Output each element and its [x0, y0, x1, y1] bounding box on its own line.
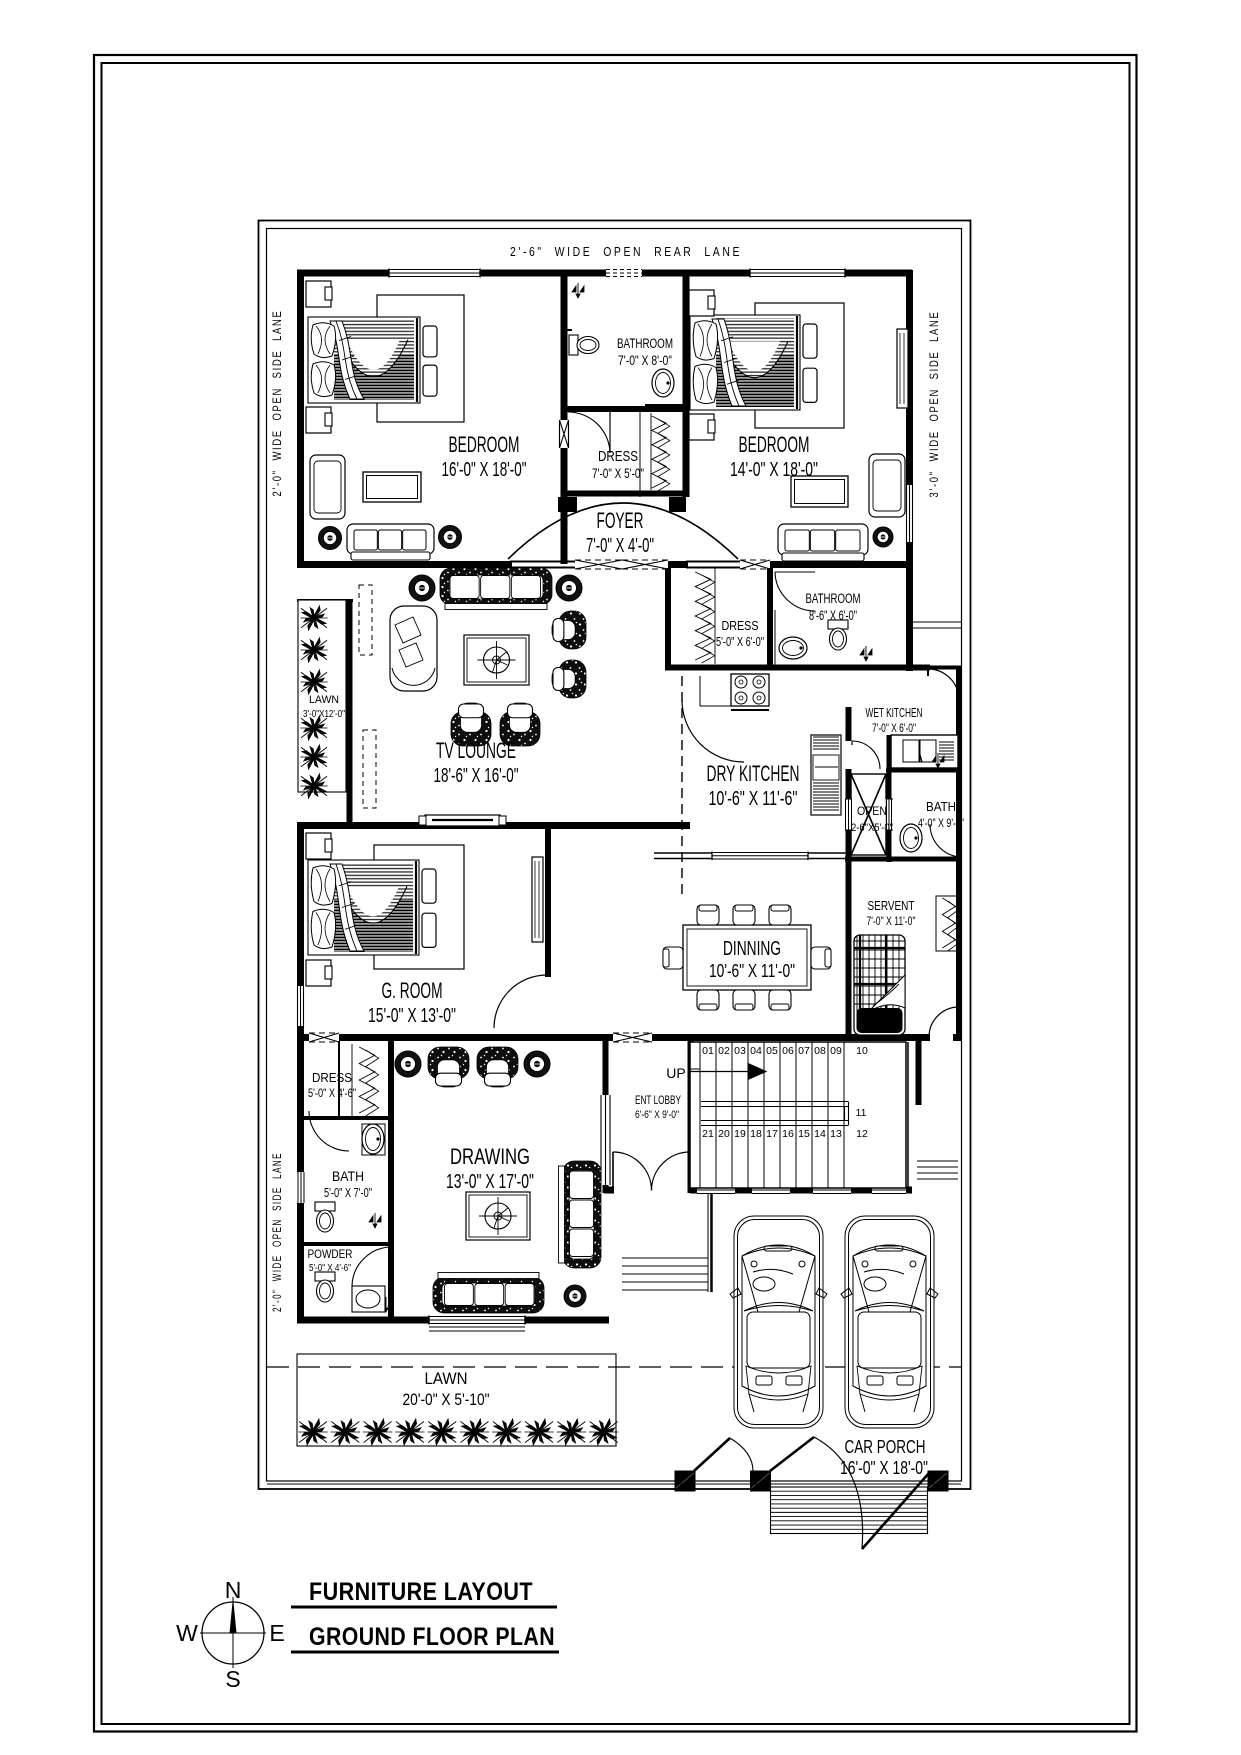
- svg-text:04: 04: [750, 1045, 762, 1057]
- svg-text:18: 18: [750, 1128, 762, 1140]
- svg-text:S: S: [225, 1666, 240, 1692]
- svg-text:09: 09: [830, 1045, 842, 1057]
- svg-text:2-6"X5'-0": 2-6"X5'-0": [851, 822, 893, 834]
- svg-text:15'-0" X 13'-0": 15'-0" X 13'-0": [368, 1005, 456, 1027]
- svg-text:GROUND FLOOR PLAN: GROUND FLOOR PLAN: [309, 1623, 555, 1651]
- svg-text:16: 16: [782, 1128, 794, 1140]
- svg-text:21: 21: [702, 1128, 714, 1140]
- svg-text:BATHROOM: BATHROOM: [806, 591, 861, 606]
- svg-text:13'-0" X 17'-0": 13'-0" X 17'-0": [446, 1171, 534, 1193]
- svg-text:10'-6" X 11'-6": 10'-6" X 11'-6": [709, 788, 798, 810]
- svg-text:W: W: [176, 1620, 198, 1646]
- svg-text:DRESS: DRESS: [312, 1070, 352, 1085]
- svg-text:03: 03: [734, 1045, 746, 1057]
- svg-text:N: N: [225, 1577, 242, 1603]
- svg-text:UP: UP: [666, 1065, 685, 1081]
- svg-text:15: 15: [798, 1128, 810, 1140]
- svg-text:BATH: BATH: [332, 1168, 364, 1184]
- svg-text:02: 02: [718, 1045, 730, 1057]
- svg-text:POWDER: POWDER: [308, 1249, 353, 1261]
- svg-text:17: 17: [766, 1128, 778, 1140]
- svg-text:DRESS: DRESS: [598, 448, 638, 465]
- svg-text:12: 12: [856, 1128, 868, 1140]
- svg-text:7'-0" X 11'-0": 7'-0" X 11'-0": [867, 916, 916, 928]
- svg-text:SERVENT: SERVENT: [868, 899, 915, 913]
- svg-text:ENT LOBBY: ENT LOBBY: [635, 1093, 681, 1107]
- svg-text:11: 11: [856, 1107, 867, 1119]
- svg-text:7'-0" X 8'-0": 7'-0" X 8'-0": [618, 353, 672, 368]
- svg-text:3'-0"X12'-0": 3'-0"X12'-0": [303, 708, 345, 720]
- svg-text:5'-0" X 4'-6": 5'-0" X 4'-6": [308, 1086, 356, 1100]
- svg-text:10: 10: [856, 1045, 868, 1057]
- svg-text:14: 14: [814, 1128, 826, 1140]
- svg-text:3'-0" WIDE OPEN SIDE LANE: 3'-0" WIDE OPEN SIDE LANE: [927, 311, 941, 498]
- svg-text:5'-0" X 6'-0": 5'-0" X 6'-0": [716, 635, 764, 649]
- svg-text:G. ROOM: G. ROOM: [382, 978, 443, 1003]
- svg-text:DINNING: DINNING: [723, 938, 781, 960]
- svg-text:OPEN: OPEN: [857, 804, 887, 818]
- svg-text:05: 05: [766, 1045, 778, 1057]
- svg-text:5'-0" X 7'-0": 5'-0" X 7'-0": [324, 1186, 372, 1200]
- svg-text:FOYER: FOYER: [597, 508, 644, 533]
- svg-text:20: 20: [718, 1128, 730, 1140]
- svg-text:FURNITURE LAYOUT: FURNITURE LAYOUT: [309, 1578, 533, 1606]
- svg-text:WET KITCHEN: WET KITCHEN: [866, 705, 923, 720]
- svg-text:19: 19: [734, 1128, 746, 1140]
- svg-text:BATH: BATH: [926, 800, 956, 814]
- svg-text:DRESS: DRESS: [722, 618, 759, 633]
- svg-text:BEDROOM: BEDROOM: [739, 432, 810, 457]
- svg-text:20'-0" X 5'-10": 20'-0" X 5'-10": [403, 1390, 490, 1409]
- svg-text:E: E: [269, 1620, 284, 1646]
- svg-text:06: 06: [782, 1045, 794, 1057]
- svg-text:16'-0" X 18'-0": 16'-0" X 18'-0": [442, 459, 527, 481]
- svg-text:2'-6" WIDE OPEN REAR LANE: 2'-6" WIDE OPEN REAR LANE: [510, 244, 742, 259]
- svg-text:07: 07: [798, 1045, 810, 1057]
- svg-text:DRY KITCHEN: DRY KITCHEN: [707, 761, 800, 786]
- svg-text:CAR PORCH: CAR PORCH: [845, 1437, 926, 1457]
- svg-text:01: 01: [702, 1045, 714, 1057]
- svg-text:7'-0" X 5'-0": 7'-0" X 5'-0": [592, 466, 644, 481]
- svg-text:16'-0" X 18'-0": 16'-0" X 18'-0": [840, 1458, 928, 1478]
- svg-text:BATHROOM: BATHROOM: [617, 336, 673, 351]
- svg-text:7'-0" X 6'-0": 7'-0" X 6'-0": [872, 721, 916, 735]
- svg-text:6'-6" X 9'-0": 6'-6" X 9'-0": [635, 1109, 679, 1121]
- svg-text:BEDROOM: BEDROOM: [449, 432, 520, 457]
- svg-text:LAWN: LAWN: [309, 694, 339, 706]
- svg-text:13: 13: [830, 1128, 842, 1140]
- svg-text:18'-6" X 16'-0": 18'-6" X 16'-0": [434, 765, 519, 787]
- svg-text:LAWN: LAWN: [425, 1369, 468, 1388]
- svg-text:10'-6" X 11'-0": 10'-6" X 11'-0": [709, 961, 795, 981]
- svg-text:7'-0" X 4'-0": 7'-0" X 4'-0": [586, 535, 654, 557]
- svg-text:2'-0" WIDE OPEN SIDE LANE: 2'-0" WIDE OPEN SIDE LANE: [270, 310, 284, 497]
- svg-text:4'-0" X 9'-0": 4'-0" X 9'-0": [918, 816, 964, 830]
- svg-text:2'-0" WIDE OPEN SIDE LANE: 2'-0" WIDE OPEN SIDE LANE: [270, 1152, 284, 1312]
- svg-text:DRAWING: DRAWING: [450, 1144, 530, 1169]
- svg-text:08: 08: [814, 1045, 826, 1057]
- svg-text:14'-0" X 18'-0": 14'-0" X 18'-0": [730, 459, 818, 481]
- svg-text:TV LOUNGE: TV LOUNGE: [436, 738, 516, 763]
